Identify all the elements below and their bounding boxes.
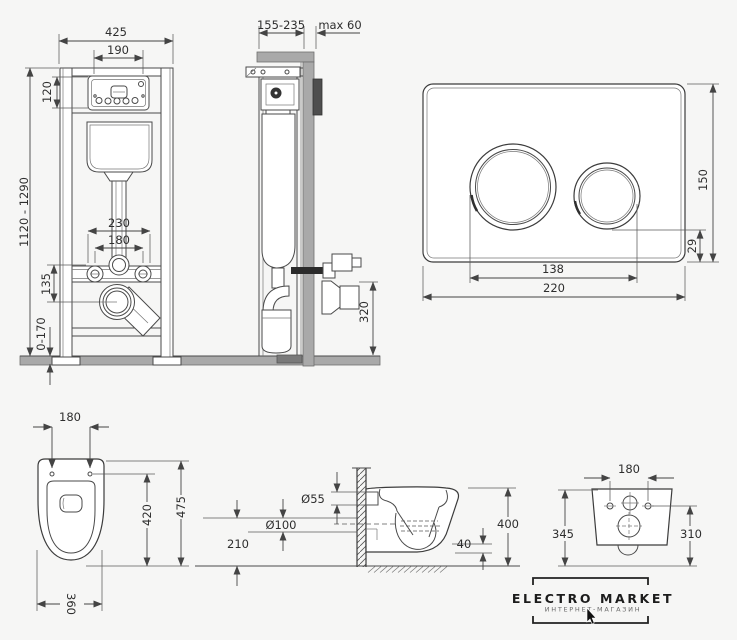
dim-bowl-width: 360 (64, 593, 78, 615)
flush-button-small (574, 163, 640, 229)
dim-outlet-diameter: Ø100 (265, 518, 296, 532)
dim-bowl-lip: 40 (457, 537, 472, 551)
dim-bowl-hole-spacing: 180 (59, 410, 81, 424)
flush-plate-view: 150 29 138 220 (423, 84, 719, 301)
dim-plate-height: 150 (696, 169, 710, 191)
dim-back-height-left: 345 (552, 527, 574, 541)
dim-wall-max: max 60 (318, 18, 361, 32)
bowl-back-view: 180 345 310 (552, 462, 702, 566)
dim-panel-height: 120 (40, 81, 54, 103)
dim-bolt-spacing-wide: 230 (108, 216, 130, 230)
dim-bolt-spacing-narrow: 180 (108, 233, 130, 247)
bowl-top-view: 180 475 420 360 (33, 410, 189, 615)
dim-plate-width: 220 (543, 281, 565, 295)
flush-plate-side-profile (313, 79, 322, 115)
dim-bowl-length-inner: 420 (140, 504, 154, 526)
frame-front-view: 425 190 120 1120 - 1290 230 180 135 0-17… (17, 25, 181, 385)
dim-inlet-diameter: Ø55 (301, 492, 325, 506)
technical-drawing: 425 190 120 1120 - 1290 230 180 135 0-17… (0, 0, 737, 640)
flush-button-large (470, 144, 556, 230)
dim-depth-range: 155-235 (257, 18, 305, 32)
dim-button-span: 138 (542, 262, 564, 276)
dim-back-height-right: 310 (680, 527, 702, 541)
frame-side-view: 155-235 max 60 320 (246, 18, 378, 366)
dim-drain-offset: 135 (39, 273, 53, 295)
dim-back-hole-spacing: 180 (618, 462, 640, 476)
dim-frame-inner-width: 190 (107, 43, 129, 57)
dim-button-offset: 29 (685, 239, 699, 254)
dim-foot-range: 0-170 (34, 317, 48, 350)
logo-title: ELECTRO MARKET (512, 591, 674, 606)
logo-bracket-top (533, 578, 648, 585)
drawing-page: 425 190 120 1120 - 1290 230 180 135 0-17… (0, 0, 737, 640)
dim-bowl-length-total: 475 (174, 496, 188, 518)
dim-frame-total-width: 425 (105, 25, 127, 39)
bowl-side-view: Ø55 Ø100 210 400 40 (195, 468, 520, 586)
dim-bowl-height-total: 400 (497, 517, 519, 531)
dim-frame-height-range: 1120 - 1290 (17, 177, 31, 247)
dim-outlet-height: 320 (357, 301, 371, 323)
dim-bowl-outlet-height: 210 (227, 537, 249, 551)
logo: ELECTRO MARKET ИНТЕРНЕТ-МАГАЗИН (512, 578, 674, 624)
floor-hatching (368, 567, 447, 573)
logo-subtitle: ИНТЕРНЕТ-МАГАЗИН (545, 606, 642, 614)
